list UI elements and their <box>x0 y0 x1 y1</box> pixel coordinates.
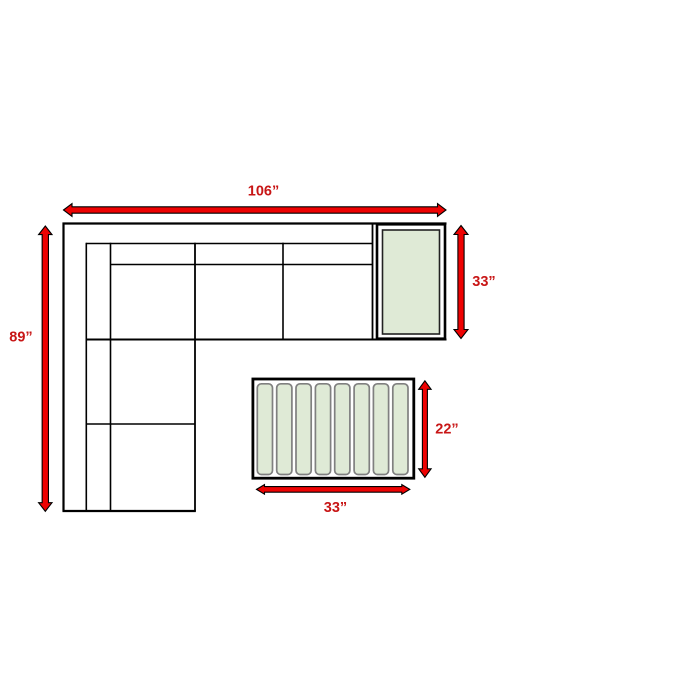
svg-text:89”: 89” <box>9 330 32 346</box>
svg-text:106”: 106” <box>248 184 279 200</box>
svg-text:33”: 33” <box>324 500 347 516</box>
svg-text:33”: 33” <box>472 274 495 290</box>
svg-text:22”: 22” <box>435 422 458 438</box>
